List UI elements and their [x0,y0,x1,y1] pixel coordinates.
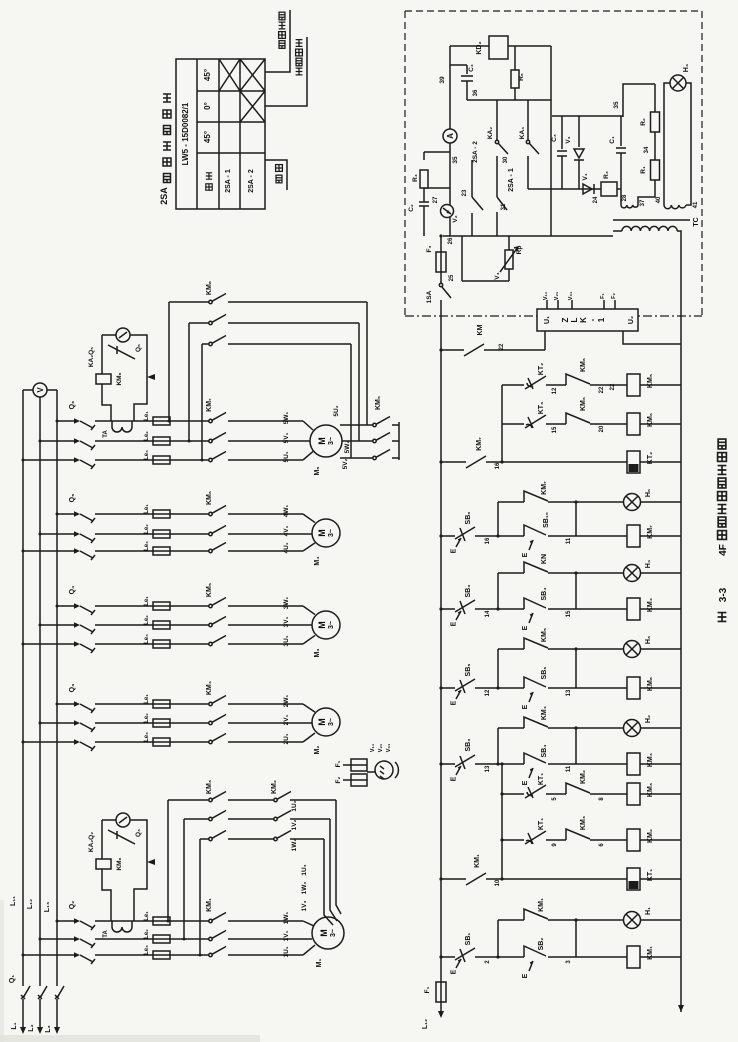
svg-text:22: 22 [499,343,505,350]
svg-text:27: 27 [433,196,439,203]
svg-text:Le₃: Le₃ [144,541,150,551]
svg-text:KT₁: KT₁ [647,869,654,881]
svg-text:KA₃: KA₃ [519,127,526,139]
svg-text:45°: 45° [203,131,212,143]
svg-text:5V₂: 5V₂ [342,458,349,469]
svg-text:1W₁: 1W₁ [283,911,290,924]
svg-text:L: L [570,317,579,322]
svg-text:E: E [451,969,458,974]
svg-text:A: A [446,133,455,139]
svg-text:3~: 3~ [328,621,335,629]
svg-text:H₃: H₃ [645,636,652,644]
svg-text:1U₃: 1U₃ [301,864,308,875]
svg-text:Le₁: Le₁ [144,911,150,921]
svg-text:41: 41 [693,201,699,208]
svg-text:SB₄: SB₄ [541,587,548,600]
svg-text:1U₂: 1U₂ [291,800,298,811]
svg-text:Q₃: Q₃ [69,684,76,693]
svg-text:R₂: R₂ [640,118,647,126]
svg-text:KM₅: KM₅ [206,583,213,597]
svg-text:2SA - 2: 2SA - 2 [472,141,479,163]
svg-text:3V₁: 3V₁ [283,616,290,627]
svg-text:Le₃: Le₃ [144,732,150,742]
svg-text:40: 40 [656,196,662,203]
svg-text:L₁₁: L₁₁ [10,896,17,906]
svg-text:KM₃: KM₃ [580,816,587,830]
svg-text:C₁: C₁ [609,136,616,144]
svg-text:V₃₁: V₃₁ [386,743,392,752]
svg-text:5W₂: 5W₂ [344,441,351,454]
svg-text:KM₂: KM₂ [271,780,278,794]
svg-text:2U₁: 2U₁ [283,733,290,744]
svg-text:Le₃: Le₃ [144,450,150,460]
svg-text:Q₆: Q₆ [69,401,76,410]
svg-text:39: 39 [439,76,446,84]
svg-text:F₂: F₂ [611,293,617,299]
svg-text:KM₄: KM₄ [541,706,548,720]
svg-text:15: 15 [552,426,558,433]
svg-text:V₄: V₄ [494,272,501,279]
svg-text:4U₁: 4U₁ [283,542,290,553]
svg-text:36: 36 [473,89,479,96]
svg-text:LW5 - 15D0082/1: LW5 - 15D0082/1 [181,102,190,165]
svg-text:13: 13 [485,765,491,772]
svg-text:11: 11 [566,765,572,772]
svg-text:KN: KN [541,554,548,564]
svg-text:1V₁: 1V₁ [283,930,290,941]
svg-text:U₂: U₂ [628,316,635,324]
svg-text:TA: TA [103,930,109,938]
svg-text:Q₆: Q₆ [135,344,142,352]
svg-text:0°: 0° [203,102,212,110]
svg-text:KM₁: KM₁ [647,946,654,960]
svg-text:Le₃: Le₃ [144,945,150,955]
svg-text:3~: 3~ [328,437,335,445]
svg-text:4V₁: 4V₁ [283,525,290,536]
svg-text:4W₁: 4W₁ [283,504,290,517]
svg-text:1V₃: 1V₃ [301,901,308,912]
svg-text:20: 20 [599,425,605,432]
svg-text:TA: TA [103,430,109,438]
svg-text:5V₁: 5V₁ [283,432,290,443]
svg-text:L₁: L₁ [11,1022,18,1029]
svg-text:28: 28 [622,194,628,201]
svg-text:Q₂: Q₂ [69,901,76,910]
svg-text:KM₃: KM₃ [647,783,654,797]
svg-text:V₃₁: V₃₁ [568,291,574,300]
svg-text:KM₄: KM₄ [647,753,654,767]
svg-text:M₂: M₂ [314,746,321,755]
svg-text:KM₇: KM₇ [647,525,654,539]
svg-text:U₁: U₁ [544,316,551,324]
svg-text:M₃: M₃ [314,648,321,657]
svg-text:KT₁: KT₁ [538,773,545,785]
svg-text:KA₂Q₂: KA₂Q₂ [88,832,95,852]
svg-text:5U₂: 5U₂ [333,405,340,416]
svg-text:M: M [317,529,327,537]
svg-text:F₁: F₁ [424,986,431,993]
svg-text:2W₁: 2W₁ [283,694,290,707]
svg-text:SB₄: SB₄ [541,744,548,757]
svg-text:12: 12 [485,689,491,696]
svg-text:2SA - 2: 2SA - 2 [248,169,255,193]
svg-text:Le₁: Le₁ [144,694,150,704]
svg-text:KD₂: KD₂ [476,41,483,54]
svg-text:2V₁: 2V₁ [283,714,290,725]
svg-text:KM₁: KM₁ [474,854,481,868]
svg-text:C₃: C₃ [551,134,558,142]
svg-text:H₆: H₆ [645,489,652,497]
svg-text:TC: TC [693,217,700,226]
svg-text:C₂: C₂ [408,204,415,212]
svg-text:E: E [451,700,458,705]
svg-text:14: 14 [485,610,491,617]
svg-text:Le₂: Le₂ [144,929,150,939]
svg-text:26: 26 [448,237,454,244]
svg-text:3W₁: 3W₁ [283,596,290,609]
svg-text:KT₁: KT₁ [538,818,545,830]
svg-text:KM₈: KM₈ [647,677,654,691]
svg-text:2SA: 2SA [159,187,169,205]
svg-text:37: 37 [640,199,646,206]
svg-text:3U₁: 3U₁ [283,635,290,646]
svg-text:SB₃: SB₃ [465,585,472,598]
svg-text:E: E [522,625,529,630]
svg-text:R₄: R₄ [412,174,419,182]
svg-text:KM₁: KM₁ [206,898,213,912]
svg-text:E: E [451,621,458,626]
svg-text:23: 23 [462,189,468,196]
svg-text:Q₁: Q₁ [9,975,16,983]
svg-text:10: 10 [495,879,501,886]
svg-text:KM₇: KM₇ [541,481,548,495]
svg-text:L₁₂: L₁₂ [27,899,34,909]
svg-text:KA₂: KA₂ [487,127,494,139]
svg-text:Q₅: Q₅ [69,494,76,503]
svg-text:12: 12 [552,387,558,394]
svg-text:V₁: V₁ [582,173,589,180]
svg-text:KM₅: KM₅ [647,374,654,388]
svg-text:M₁: M₁ [316,959,323,968]
svg-text:KM₆: KM₆ [647,413,654,427]
svg-text:L₁₂: L₁₂ [422,1019,429,1029]
svg-text:13: 13 [566,689,572,696]
svg-text:M: M [317,437,327,445]
svg-text:24: 24 [593,196,599,203]
svg-text:SB₆: SB₆ [541,667,548,680]
svg-text:Rp: Rp [516,246,523,255]
svg-text:1U₁: 1U₁ [283,946,290,957]
svg-text:KM₆: KM₆ [580,358,587,372]
svg-text:E: E [522,780,529,785]
svg-text:5U₁: 5U₁ [283,451,290,462]
svg-text:1W₂: 1W₂ [291,839,298,852]
svg-text:SB₅: SB₅ [465,664,472,677]
svg-text:SB₁₀: SB₁₀ [543,512,550,528]
svg-text:V: V [36,387,45,393]
svg-text:R₃: R₃ [603,171,610,179]
svg-text:4F: 4F [718,544,729,556]
svg-text:KM₃: KM₃ [206,780,213,794]
svg-text:E: E [451,776,458,781]
svg-text:-: - [588,318,597,321]
svg-text:F₃: F₃ [426,246,433,253]
svg-text:KM₉: KM₉ [375,396,382,410]
svg-text:M₄: M₄ [314,556,321,565]
svg-text:11: 11 [566,537,572,544]
svg-text:35: 35 [613,101,620,109]
svg-text:M: M [317,718,327,726]
svg-text:KM₁: KM₁ [538,898,545,912]
svg-text:V₁₁: V₁₁ [370,743,376,752]
svg-text:H₂: H₂ [645,715,652,723]
svg-text:E: E [522,552,529,557]
svg-text:45°: 45° [203,69,212,81]
svg-text:Q₃: Q₃ [135,829,142,837]
svg-text:3-3: 3-3 [718,587,729,602]
svg-text:30: 30 [503,156,509,163]
svg-text:E: E [451,548,458,553]
svg-text:H₄: H₄ [645,560,652,568]
svg-text:E: E [522,973,529,978]
svg-text:KT₂: KT₂ [538,363,545,375]
svg-text:35: 35 [452,156,459,164]
svg-text:22: 22 [610,383,616,390]
svg-text:SB₉: SB₉ [465,512,472,525]
svg-text:16: 16 [495,462,501,469]
svg-text:KM₅: KM₅ [541,628,548,642]
svg-text:1SA: 1SA [426,290,433,303]
svg-text:C₄: C₄ [468,64,475,72]
svg-text:1V₂: 1V₂ [291,819,298,830]
svg-text:L₂: L₂ [28,1024,35,1031]
svg-text:Le₂: Le₂ [144,524,150,534]
svg-text:KM₆: KM₆ [580,397,587,411]
svg-text:KM₂: KM₂ [647,829,654,843]
svg-text:Le₂: Le₂ [144,713,150,723]
svg-text:E: E [522,704,529,709]
svg-text:Z: Z [561,317,570,322]
svg-text:F₁: F₁ [335,760,342,767]
svg-text:Le₁: Le₁ [144,504,150,514]
svg-text:Le₂: Le₂ [144,431,150,441]
svg-text:R₆: R₆ [518,73,525,81]
svg-text:KM₈: KM₈ [206,281,213,295]
svg-text:KA₂Q₅: KA₂Q₅ [88,347,95,367]
svg-text:V₂₁: V₂₁ [378,743,384,752]
svg-text:KM₆: KM₆ [116,372,123,385]
svg-text:3~: 3~ [330,929,337,937]
svg-text:34: 34 [644,146,650,153]
svg-text:Q₄: Q₄ [69,586,76,595]
svg-text:KM₆: KM₆ [206,491,213,505]
svg-text:M: M [319,929,329,937]
svg-text:15: 15 [566,610,572,617]
svg-text:SB₁: SB₁ [465,933,472,946]
svg-text:2SA - 1: 2SA - 1 [508,168,515,192]
svg-text:KM₆: KM₆ [116,857,123,870]
svg-text:SB₃: SB₃ [465,739,472,752]
svg-text:R₁: R₁ [640,166,647,174]
svg-text:KM₂: KM₂ [580,770,587,784]
svg-text:V₂: V₂ [452,215,459,222]
svg-text:L₁₃: L₁₃ [44,902,51,912]
svg-text:5W₁: 5W₁ [283,411,290,424]
svg-text:2SA - 1: 2SA - 1 [225,169,232,193]
svg-text:M₅: M₅ [314,466,321,475]
svg-text:KT₃: KT₃ [538,402,545,415]
svg-text:3~: 3~ [328,718,335,726]
svg-text:V₃: V₃ [565,136,572,143]
svg-text:Le₂: Le₂ [144,615,150,625]
svg-text:16: 16 [485,537,491,544]
svg-text:KM₇: KM₇ [206,398,213,412]
svg-text:KM₇: KM₇ [476,437,483,451]
svg-text:Le₁: Le₁ [144,411,150,421]
svg-text:L₃: L₃ [45,1025,52,1033]
svg-text:KT₂: KT₂ [647,452,654,464]
svg-text:M: M [317,621,327,629]
svg-text:25: 25 [449,274,455,281]
svg-text:H₁: H₁ [645,907,652,915]
svg-text:KM: KM [477,324,484,335]
svg-text:V₁₁: V₁₁ [543,291,549,300]
svg-text:1: 1 [597,317,606,322]
svg-text:Le₃: Le₃ [144,634,150,644]
svg-text:V₂₁: V₂₁ [554,291,560,300]
svg-text:K: K [579,317,588,323]
svg-text:Le₁: Le₁ [144,596,150,606]
svg-text:1W₃: 1W₃ [301,882,308,895]
svg-text:F₁: F₁ [600,292,606,298]
svg-text:KM₄: KM₄ [647,598,654,612]
svg-text:SB₂: SB₂ [538,938,545,951]
svg-text:F₂: F₂ [335,776,342,783]
svg-text:31: 31 [501,203,507,210]
svg-text:3~: 3~ [328,529,335,537]
svg-text:22: 22 [599,386,605,393]
svg-text:H₄: H₄ [683,64,690,72]
svg-text:KM₄: KM₄ [206,681,213,695]
